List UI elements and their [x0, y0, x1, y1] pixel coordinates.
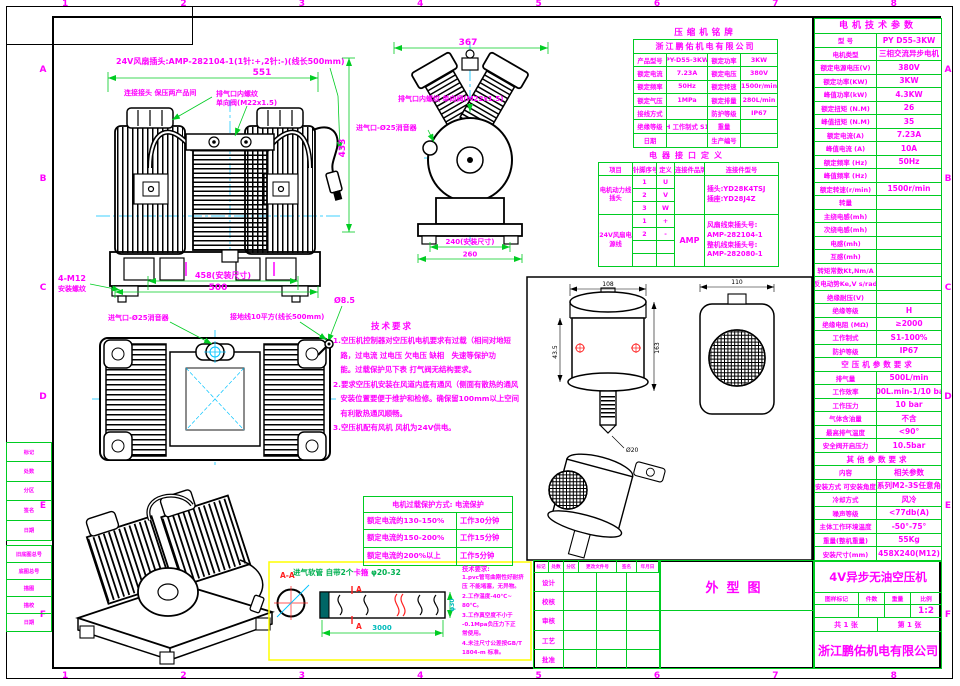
param-label: 冷却方式	[815, 493, 877, 506]
title-block-values: 1:2	[815, 605, 941, 618]
nameplate-cell: 防护等级	[708, 107, 741, 119]
param-row: 内容相关参数	[815, 466, 941, 480]
nameplate-cell: 3KW	[741, 54, 777, 66]
param-row: 互感(mh)	[815, 250, 941, 264]
nameplate-cell	[741, 134, 777, 147]
signature-label: 校核	[534, 592, 564, 610]
nameplate-cell: 额定转速	[708, 81, 741, 93]
zone-number: 6	[598, 671, 716, 684]
param-label: 额定频率 (Hz)	[815, 156, 877, 169]
param-label: 电机类型	[815, 48, 877, 61]
cad-sheet: { "colors":{"accent_text":"#FF00FF","tab…	[0, 0, 960, 686]
zone-number: 8	[835, 671, 953, 684]
nameplate-cell: 380V	[741, 67, 777, 79]
param-row: 安装方式 可安装角度全系列M2-3S任意角度	[815, 480, 941, 494]
technical-note-line: 路，过电流 过电压 欠电压 缺相 失速等保护功	[333, 349, 529, 364]
technical-notes-lines: 1.空压机控制器对空压机电机要求有过载（相间对地短 路，过电流 过电压 欠电压 …	[333, 334, 529, 436]
param-label: 防护等级	[815, 345, 877, 358]
signature-cell	[597, 631, 627, 649]
param-value	[877, 169, 941, 182]
zone-number: 7	[716, 671, 834, 684]
nameplate-cell: 额定电压	[708, 67, 741, 79]
param-value: 10 bar	[877, 399, 941, 412]
title-block-middle: 外型图	[660, 560, 814, 669]
param-label: 反电动势Ke,V s/rad	[815, 277, 877, 290]
pin-number	[633, 241, 657, 254]
param-value	[877, 223, 941, 236]
nameplate-cell: 280L/min	[741, 94, 777, 106]
nameplate-cell: 额定气压	[634, 94, 667, 106]
param-value	[877, 210, 941, 223]
signature-cell	[564, 573, 597, 591]
nameplate-cell: 日期	[634, 134, 667, 147]
nameplate-row: 额定电流7.23A额定电压380V	[634, 67, 777, 80]
overload-row: 额定电流的130-150%工作30分钟	[364, 513, 512, 530]
overload-cell: 额定电流的200%以上	[364, 548, 457, 565]
param-value: PY D55-3KW	[877, 34, 941, 47]
nameplate-cell: 1MPa	[667, 94, 708, 106]
nameplate-cell: 额定频率	[634, 81, 667, 93]
hose-notes: 技术要求: 1.pvc管弯曲刚性好耐挤压 不能堵塞，无异物。2.工作温度-40℃…	[462, 564, 532, 659]
param-label: 转矩常数Kt,Nm/A	[815, 264, 877, 277]
overload-rows: 额定电流的130-150%工作30分钟额定电流的150-200%工作15分钟额定…	[364, 513, 512, 565]
param-label: 噪声等级	[815, 507, 877, 520]
connector-group-name: 电机动力线插头	[599, 176, 633, 215]
param-row: 转矩常数Kt,Nm/A	[815, 264, 941, 278]
param-row: 主体工作环境温度-50°-75°	[815, 520, 941, 534]
sheet-total: 共 1 张	[815, 618, 878, 631]
nameplate-cell: 1500r/min	[741, 81, 777, 93]
param-label: 型 号	[815, 34, 877, 47]
param-label: 工作制式	[815, 331, 877, 344]
zone-letter: C	[36, 234, 50, 343]
pin-definition: W	[657, 202, 675, 215]
nameplate-cell: 绝缘等级	[634, 120, 667, 132]
param-label: 额定电源电压(V)	[815, 61, 877, 74]
overload-cell: 额定电流的130-150%	[364, 513, 457, 529]
zone-number: 1	[6, 0, 124, 12]
hose-note-line: 3.工作真空度不小于	[462, 612, 532, 621]
overload-cell: 额定电流的150-200%	[364, 530, 457, 546]
nameplate-row: 额定频率50Hz额定转速1500r/min	[634, 81, 777, 94]
pin-definition: -	[657, 228, 675, 241]
zone-number: 8	[835, 0, 953, 12]
signature-cell	[597, 611, 627, 629]
param-label: 主绕电感(mh)	[815, 210, 877, 223]
hose-note-line: 1.pvc管弯曲刚性好耐挤	[462, 574, 532, 583]
nameplate-cell	[667, 134, 708, 147]
param-row: 额定转速(r/min)1500r/min	[815, 183, 941, 197]
param-value	[877, 196, 941, 209]
connector-header-row: 项目针脚序号定义连接件品牌连接件型号	[599, 163, 779, 176]
zone-number: 3	[243, 0, 361, 12]
technical-note-line: 1.空压机控制器对空压机电机要求有过载（相间对地短	[333, 334, 529, 349]
signature-cell	[627, 650, 659, 669]
nameplate-row: 产品型号PY-D55-3KW额定功率3KW	[634, 54, 777, 67]
zone-number: 7	[716, 0, 834, 12]
compressor-nameplate: 压缩机铭牌 浙江鹏佑机电有限公司 产品型号PY-D55-3KW额定功率3KW额定…	[633, 26, 778, 148]
nameplate-title: 压缩机铭牌	[633, 26, 778, 39]
zone-number: 1	[6, 671, 124, 684]
pin-number	[633, 254, 657, 267]
title-block-header-cell: 重量	[885, 593, 911, 604]
param-row: 冷却方式风冷	[815, 493, 941, 507]
zone-number: 2	[124, 671, 242, 684]
pin-number: 3	[633, 202, 657, 215]
connector-table-grid: 项目针脚序号定义连接件品牌连接件型号电机动力线插头1U插头:YD28K4TSJ …	[598, 162, 779, 267]
signature-cell	[597, 592, 627, 610]
param-label: 转量	[815, 196, 877, 209]
zone-letter: A	[941, 16, 955, 125]
zone-number: 3	[243, 671, 361, 684]
margin-row: 日期	[7, 521, 51, 540]
param-value: 7.23A	[877, 129, 941, 142]
signature-label: 批准	[534, 650, 564, 669]
param-value: 200L.min-1/10 bar	[877, 385, 941, 398]
connector-header-cell: 连接件型号	[705, 163, 779, 176]
param-label: 峰值扭矩 (N.M)	[815, 115, 877, 128]
zone-numbers-bottom: 12345678	[6, 671, 953, 684]
param-label: 额定电流(A)	[815, 129, 877, 142]
param-value: 风冷	[877, 493, 941, 506]
hose-note-line: 2.工作温度-40℃~	[462, 593, 532, 602]
param-value: 26	[877, 102, 941, 115]
hose-note-line: 1804-m 标准。	[462, 649, 532, 658]
signature-rows: 设计校核审核工艺批准	[534, 573, 659, 669]
param-value: 10A	[877, 142, 941, 155]
param-value: 1500r/min	[877, 183, 941, 196]
param-value: 458X240(M12)	[877, 547, 941, 561]
param-value: 三相交流异步电机	[877, 48, 941, 61]
hose-note-line: 常使用。	[462, 630, 532, 639]
param-row: 型 号PY D55-3KW	[815, 34, 941, 48]
overload-row: 额定电流的150-200%工作15分钟	[364, 530, 512, 547]
signature-label: 设计	[534, 573, 564, 591]
param-row: 防护等级IP67	[815, 345, 941, 359]
param-value	[877, 291, 941, 304]
param-value: <77db(A)	[877, 507, 941, 520]
margin-revision-table: 标记处数分区签名日期	[6, 442, 52, 541]
drawing-name: 外型图	[661, 577, 813, 596]
param-label: 峰值频率 (Hz)	[815, 169, 877, 182]
param-value: 3KW	[877, 75, 941, 88]
param-label: 排气量	[815, 372, 877, 385]
param-value: -50°-75°	[877, 520, 941, 533]
connector-group-name: 24V风扇电源线	[599, 215, 633, 267]
zone-letter: E	[941, 451, 955, 560]
signature-cell	[564, 611, 597, 629]
nameplate-row: 日期生产编号	[634, 134, 777, 147]
param-row: 峰值频率 (Hz)	[815, 169, 941, 183]
sheet-number: 第 1 张	[878, 618, 941, 631]
revision-header-cell: 更改文件号	[579, 561, 617, 572]
margin-row: 标记	[7, 443, 51, 462]
margin-row: 处数	[7, 462, 51, 481]
technical-note-line: 安装位置要便于维护和检修。确保留100mm以上空间	[333, 392, 529, 407]
connector-header-cell: 连接件品牌	[675, 163, 705, 176]
param-row: 额定扭矩 (N.M)26	[815, 102, 941, 116]
nameplate-cell: 重量	[708, 120, 741, 132]
signature-row: 批准	[534, 650, 659, 669]
zone-letters-right: ABCDEF	[941, 16, 955, 669]
param-row: 主绕电感(mh)	[815, 210, 941, 224]
param-row: 峰值功率(kW)4.3KW	[815, 88, 941, 102]
param-row: 工作制式S1-100%	[815, 331, 941, 345]
param-value: 4.3KW	[877, 88, 941, 101]
param-value: 35	[877, 115, 941, 128]
company-name: 浙江鹏佑机电有限公司	[815, 632, 941, 668]
title-block-right: 4V异步无油空压机 图样标记件数重量比例 1:2 共 1 张 第 1 张 浙江鹏…	[814, 560, 942, 669]
param-row: 电机类型三相交流异步电机	[815, 48, 941, 62]
pin-number: 2	[633, 228, 657, 241]
signature-row: 审核	[534, 611, 659, 630]
param-label: 重量(整机重量)	[815, 534, 877, 547]
qty-cell	[859, 605, 885, 617]
connector-row: 电机动力线插头1U插头:YD28K4TSJ 插座:YD28J4Z	[599, 176, 779, 189]
nameplate-row: 绝缘等级H 工作制式 S1重量	[634, 120, 777, 133]
margin-row: 描校	[7, 597, 51, 614]
param-label: 绝缘耐压(V)	[815, 291, 877, 304]
margin-row: 分区	[7, 482, 51, 501]
connector-header-cell: 项目	[599, 163, 633, 176]
param-row: 额定电流(A)7.23A	[815, 129, 941, 143]
pin-definition: U	[657, 176, 675, 189]
param-value: S1-100%	[877, 331, 941, 344]
technical-note-line: 2.要求空压机安装在风道内底有通风（侧面有散热的通风	[333, 378, 529, 393]
connector-header-cell: 针脚序号	[633, 163, 657, 176]
title-block-header-cell: 比例	[911, 593, 941, 604]
param-row: 峰值电流 (A)10A	[815, 142, 941, 156]
signature-cell	[627, 592, 659, 610]
param-section-header: 其他参数要求	[815, 453, 941, 467]
overload-cell: 工作5分钟	[457, 548, 512, 565]
nameplate-rows: 产品型号PY-D55-3KW额定功率3KW额定电流7.23A额定电压380V额定…	[634, 54, 777, 147]
param-value: 相关参数	[877, 466, 941, 479]
zone-number: 5	[480, 0, 598, 12]
pin-definition	[657, 241, 675, 254]
nameplate-cell: 产品型号	[634, 54, 667, 66]
param-value: 不含	[877, 412, 941, 425]
nameplate-cell: 生产编号	[708, 134, 741, 147]
param-value: 50Hz	[877, 156, 941, 169]
param-label: 安全阀开启压力	[815, 439, 877, 452]
param-row: 绝缘耐压(V)	[815, 291, 941, 305]
nameplate-cell: PY-D55-3KW	[667, 54, 708, 66]
pin-definition: +	[657, 215, 675, 228]
title-block-divider	[661, 610, 813, 611]
signature-cell	[597, 650, 627, 669]
param-row: 额定电源电压(V)380V	[815, 61, 941, 75]
param-label: 最高排气温度	[815, 426, 877, 439]
param-value: IP67	[877, 345, 941, 358]
nameplate-cell: 7.23A	[667, 67, 708, 79]
param-row: 排气量500L/min	[815, 372, 941, 386]
nameplate-row: 接线方式防护等级IP67	[634, 107, 777, 120]
technical-note-line: 3.空压机配有风机 风机为24V供电。	[333, 421, 529, 436]
technical-notes: 技术要求 1.空压机控制器对空压机电机要求有过载（相间对地短 路，过电流 过电压…	[333, 320, 529, 436]
param-row: 安全阀开启压力10.5bar	[815, 439, 941, 453]
param-row: 气体含油量不含	[815, 412, 941, 426]
param-row: 工作压力10 bar	[815, 399, 941, 413]
nameplate-cell: 额定电流	[634, 67, 667, 79]
margin-row: 日期	[7, 614, 51, 631]
param-label: 额定转速(r/min)	[815, 183, 877, 196]
connector-brand	[675, 176, 705, 215]
motor-parameter-table: 电机技术参数 型 号PY D55-3KW电机类型三相交流异步电机额定电源电压(V…	[814, 18, 942, 562]
pin-definition	[657, 254, 675, 267]
technical-note-line: 有利散热通风顺畅。	[333, 407, 529, 422]
param-label: 工作压力	[815, 399, 877, 412]
nameplate-company: 浙江鹏佑机电有限公司	[634, 40, 777, 54]
margin-row: 旧底图总号	[7, 546, 51, 563]
pin-number: 1	[633, 215, 657, 228]
title-block-signatures: 标记处数分区更改文件号签名年月日 设计校核审核工艺批准	[533, 560, 660, 669]
signature-label: 审核	[534, 611, 564, 629]
param-value: ≥2000	[877, 318, 941, 331]
param-section-header: 空压机参数要求	[815, 358, 941, 372]
param-value: 10.5bar	[877, 439, 941, 452]
title-block-header-cell: 件数	[859, 593, 885, 604]
param-label: 次绕电感(mh)	[815, 223, 877, 236]
param-label: 互感(mh)	[815, 250, 877, 263]
zone-number: 2	[124, 0, 242, 12]
weight-cell	[885, 605, 911, 617]
signature-row: 设计	[534, 573, 659, 592]
param-row: 峰值扭矩 (N.M)35	[815, 115, 941, 129]
revision-header-cell: 处数	[549, 561, 564, 572]
revision-header-cell: 标记	[534, 561, 549, 572]
revision-header-row: 标记处数分区更改文件号签名年月日	[534, 561, 659, 573]
zone-letter: D	[36, 342, 50, 451]
param-label: 额定功率(KW)	[815, 75, 877, 88]
param-value: 380V	[877, 61, 941, 74]
param-row: 转量	[815, 196, 941, 210]
hose-note-line: 80℃。	[462, 602, 532, 611]
scale-value: 1:2	[911, 605, 941, 617]
nameplate-cell	[667, 107, 708, 119]
motor-table-rows: 型 号PY D55-3KW电机类型三相交流异步电机额定电源电压(V)380V额定…	[815, 34, 941, 561]
param-label: 峰值电流 (A)	[815, 142, 877, 155]
overload-protection-table: 电机过载保护方式: 电流保护 额定电流的130-150%工作30分钟额定电流的1…	[363, 496, 513, 566]
revision-header-cell: 分区	[564, 561, 579, 572]
zone-number: 4	[361, 671, 479, 684]
mark-cell	[815, 605, 859, 617]
signature-cell	[564, 650, 597, 669]
signature-row: 工艺	[534, 631, 659, 650]
param-label: 工作效率	[815, 385, 877, 398]
zone-letter: C	[941, 234, 955, 343]
param-row: 安装尺寸(mm)458X240(M12)	[815, 547, 941, 561]
zone-number: 6	[598, 0, 716, 12]
revision-header-cell: 年月日	[637, 561, 659, 572]
technical-note-line: 能。过载保护见下表 打气阀无结构要求。	[333, 363, 529, 378]
param-value: 55Kg	[877, 534, 941, 547]
sheet-count-row: 共 1 张 第 1 张	[815, 618, 941, 632]
hose-notes-lines: 1.pvc管弯曲刚性好耐挤压 不能堵塞，无异物。2.工作温度-40℃~80℃。3…	[462, 574, 532, 659]
zone-number: 4	[361, 0, 479, 12]
hose-note-line: 压 不能堵塞，无异物。	[462, 583, 532, 592]
param-value: <90°	[877, 426, 941, 439]
nameplate-cell: 接线方式	[634, 107, 667, 119]
param-label: 绝缘等级	[815, 304, 877, 317]
margin-row: 描图	[7, 580, 51, 597]
revision-header-cell: 签名	[617, 561, 637, 572]
param-row: 重量(整机重量)55Kg	[815, 534, 941, 548]
param-label: 电感(mh)	[815, 237, 877, 250]
nameplate-cell: 额定功率	[708, 54, 741, 66]
param-row: 反电动势Ke,V s/rad	[815, 277, 941, 291]
param-row: 额定功率(KW)3KW	[815, 75, 941, 89]
param-value	[877, 250, 941, 263]
overload-cell: 工作30分钟	[457, 513, 512, 529]
zone-number: 5	[480, 671, 598, 684]
param-row: 次绕电感(mh)	[815, 223, 941, 237]
param-label: 峰值功率(kW)	[815, 88, 877, 101]
param-row: 绝缘等级H	[815, 304, 941, 318]
param-label: 安装尺寸(mm)	[815, 547, 877, 561]
pin-number: 2	[633, 189, 657, 202]
nameplate-cell: H 工作制式 S1	[667, 120, 708, 132]
nameplate-cell: 额定排量	[708, 94, 741, 106]
title-block-headers: 图样标记件数重量比例	[815, 593, 941, 605]
param-label: 内容	[815, 466, 877, 479]
motor-table-title: 电机技术参数	[815, 19, 941, 34]
param-label: 绝缘电阻 (MΩ)	[815, 318, 877, 331]
signature-cell	[627, 573, 659, 591]
pin-number: 1	[633, 176, 657, 189]
param-value: 全系列M2-3S任意角度	[877, 480, 941, 493]
zone-letter: D	[941, 342, 955, 451]
param-label: 主体工作环境温度	[815, 520, 877, 533]
nameplate-cell	[741, 120, 777, 132]
hose-note-line: 4.未注尺寸公差按GB/T	[462, 640, 532, 649]
param-label: 气体含油量	[815, 412, 877, 425]
title-block-header-cell: 图样标记	[815, 593, 859, 604]
signature-row: 校核	[534, 592, 659, 611]
zone-letter: F	[941, 560, 955, 669]
nameplate-row: 额定气压1MPa额定排量280L/min	[634, 94, 777, 107]
connector-model: 插头:YD28K4TSJ 插座:YD28J4Z	[705, 176, 779, 215]
nameplate-cell: IP67	[741, 107, 777, 119]
zone-numbers-top: 12345678	[6, 0, 953, 12]
zone-letter: B	[36, 125, 50, 234]
signature-cell	[627, 631, 659, 649]
zone-letter: B	[941, 125, 955, 234]
param-row: 工作效率200L.min-1/10 bar	[815, 385, 941, 399]
connector-table-title: 电器接口定义	[598, 150, 778, 162]
connector-row: 24V风扇电源线1+AMP风扇线束插头号: AMP-282104-1 整机线束插…	[599, 215, 779, 228]
param-row: 电感(mh)	[815, 237, 941, 251]
margin-record-table: 旧底图总号底图总号描图描校日期	[6, 545, 52, 632]
param-value: H	[877, 304, 941, 317]
pin-definition: V	[657, 189, 675, 202]
param-row: 噪声等级<77db(A)	[815, 507, 941, 521]
hose-notes-title: 技术要求:	[462, 564, 532, 573]
zone-letter: A	[36, 16, 50, 125]
margin-row: 签名	[7, 501, 51, 520]
signature-cell	[564, 631, 597, 649]
connector-model: 风扇线束插头号: AMP-282104-1 整机线束插头号: AMP-28208…	[705, 215, 779, 267]
signature-label: 工艺	[534, 631, 564, 649]
param-value	[877, 237, 941, 250]
overload-row: 额定电流的200%以上工作5分钟	[364, 548, 512, 565]
param-row: 最高排气温度<90°	[815, 426, 941, 440]
technical-notes-title: 技术要求	[371, 320, 529, 332]
product-name: 4V异步无油空压机	[815, 561, 941, 593]
margin-row: 底图总号	[7, 563, 51, 580]
param-label: 额定扭矩 (N.M)	[815, 102, 877, 115]
signature-cell	[597, 573, 627, 591]
